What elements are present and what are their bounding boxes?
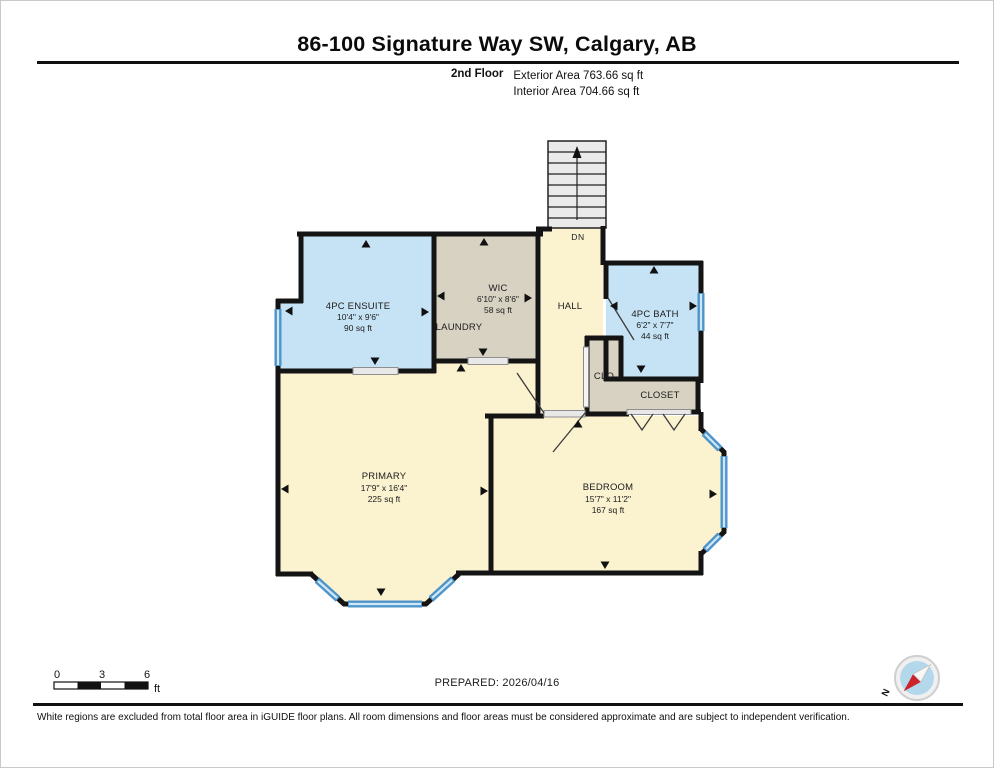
door-hall [544, 411, 585, 418]
closet-name: CLOSET [640, 390, 679, 401]
primary-dims: 17'9" x 16'4" [361, 483, 408, 493]
disclaimer-text: White regions are excluded from total fl… [37, 712, 967, 723]
stairs [548, 141, 606, 228]
bath-name: 4PC BATH [631, 309, 678, 320]
prepared-date: PREPARED: 2026/04/16 [1, 677, 993, 689]
wic-dims: 6'10" x 8'6" [477, 294, 519, 304]
bath-area: 44 sq ft [641, 331, 670, 341]
hall-name: HALL [558, 301, 583, 312]
door-clo-panel [584, 347, 589, 407]
footer-divider [33, 703, 963, 706]
bedroom-dims: 15'7" x 11'2" [585, 494, 631, 504]
floor-plan-drawing: DN 4PC ENSUITE 10'4" x 9'6" 90 sq ft WIC… [1, 1, 994, 768]
closet-opening [627, 410, 691, 415]
door-ensuite [353, 368, 398, 375]
ensuite-name: 4PC ENSUITE [326, 301, 391, 312]
wic-name: WIC [488, 283, 507, 294]
stairs-dn-label: DN [571, 232, 584, 242]
ensuite-dims: 10'4" x 9'6" [337, 312, 379, 322]
bedroom-area: 167 sq ft [592, 505, 625, 515]
primary-area: 225 sq ft [368, 494, 401, 504]
floor-plan-page: 86-100 Signature Way SW, Calgary, AB 2nd… [0, 0, 994, 768]
bedroom-name: BEDROOM [583, 482, 634, 493]
door-laundry [468, 358, 508, 365]
wic-area: 58 sq ft [484, 305, 513, 315]
laundry-name: LAUNDRY [436, 322, 483, 333]
primary-name: PRIMARY [362, 471, 407, 482]
bath-dims: 6'2" x 7'7" [636, 320, 673, 330]
clo-name: CLO [594, 371, 614, 382]
ensuite-area: 90 sq ft [344, 323, 373, 333]
